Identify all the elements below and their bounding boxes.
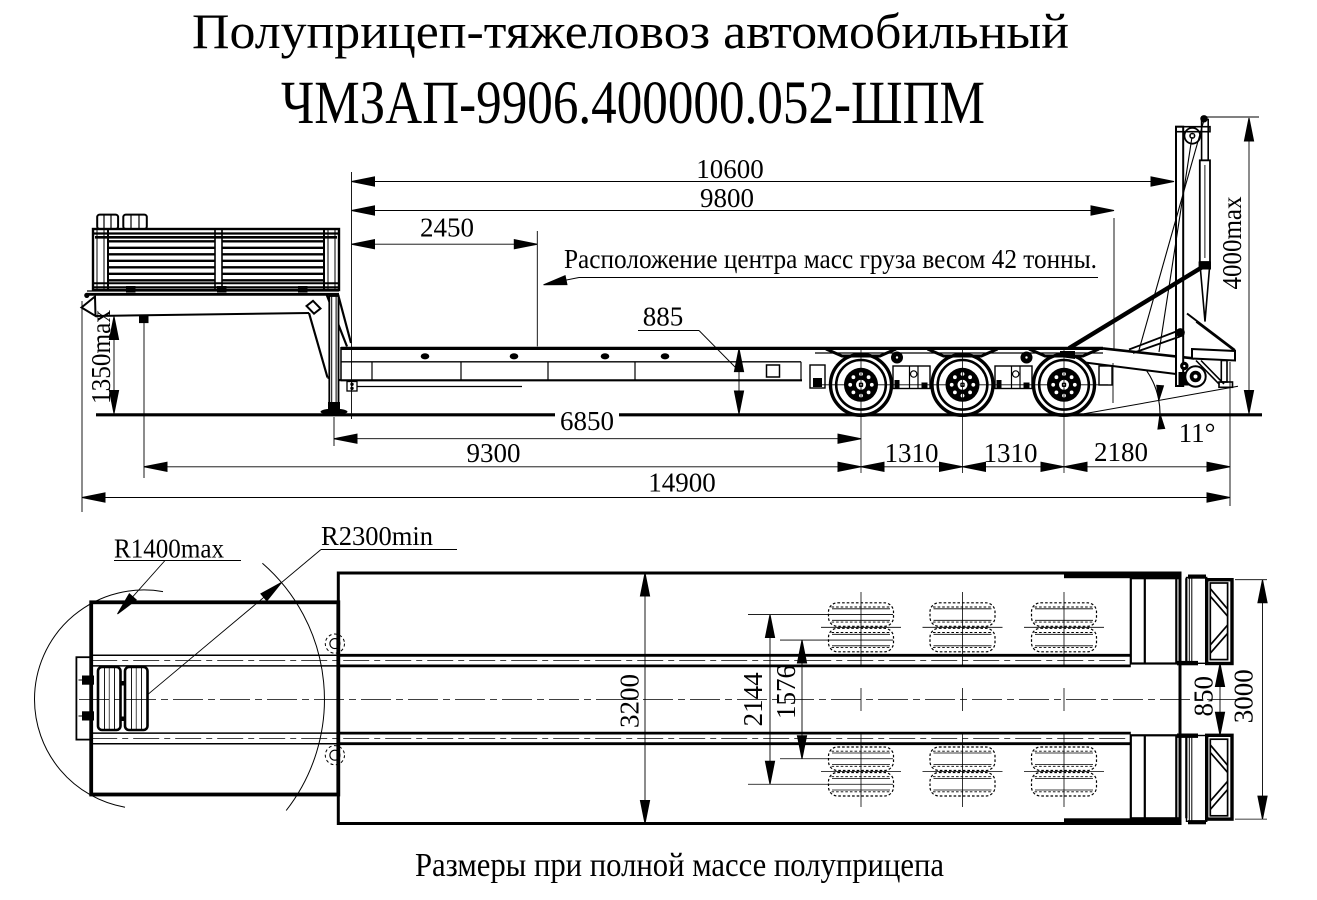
svg-text:14900: 14900	[648, 468, 716, 498]
svg-text:885: 885	[643, 302, 684, 332]
svg-text:4000max: 4000max	[1217, 196, 1247, 289]
svg-text:2180: 2180	[1094, 437, 1148, 467]
svg-text:2144: 2144	[738, 672, 768, 727]
svg-text:1350max: 1350max	[86, 310, 116, 404]
svg-text:Расположение центра масс груза: Расположение центра масс груза весом 42 …	[564, 244, 1097, 274]
svg-text:10600: 10600	[696, 154, 764, 184]
svg-text:1310: 1310	[984, 438, 1038, 468]
svg-text:3000: 3000	[1229, 669, 1259, 723]
svg-text:9800: 9800	[700, 183, 754, 213]
svg-text:Размеры при полной массе полуп: Размеры при полной массе полуприцепа	[415, 847, 944, 884]
svg-text:9300: 9300	[467, 438, 521, 468]
svg-text:Полуприцеп-тяжеловоз автомобил: Полуприцеп-тяжеловоз автомобильный	[192, 3, 1069, 59]
svg-text:3200: 3200	[615, 674, 645, 728]
svg-text:R1400max: R1400max	[114, 534, 224, 564]
svg-text:1576: 1576	[771, 665, 801, 719]
svg-text:R2300min: R2300min	[321, 521, 433, 551]
svg-text:6850: 6850	[560, 406, 614, 436]
svg-text:ЧМЗАП-9906.400000.052-ШПМ: ЧМЗАП-9906.400000.052-ШПМ	[281, 70, 985, 137]
svg-text:2450: 2450	[420, 213, 474, 243]
svg-text:11°: 11°	[1179, 418, 1216, 448]
svg-text:850: 850	[1189, 676, 1219, 717]
svg-text:1310: 1310	[885, 438, 939, 468]
